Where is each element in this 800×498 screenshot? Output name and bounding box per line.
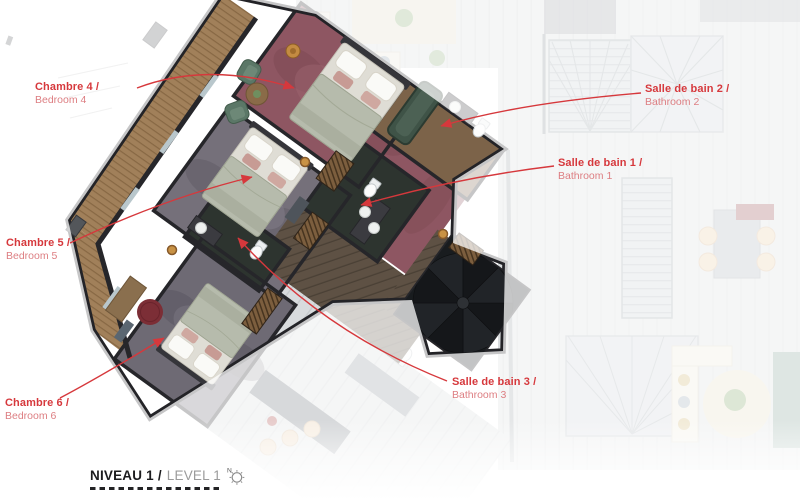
level-title-primary: NIVEAU 1 / (90, 468, 162, 483)
room-label-secondary: Bathroom 1 (558, 170, 642, 183)
room-label-primary: Salle de bain 3 / (452, 376, 536, 389)
north-indicator-icon: N (226, 466, 245, 485)
room-label-chambre-4: Chambre 4 / Bedroom 4 (35, 81, 99, 106)
floor-plan-rendering (0, 0, 800, 498)
room-label-salle-de-bain-2: Salle de bain 2 / Bathroom 2 (645, 83, 729, 108)
room-label-primary: Chambre 4 / (35, 81, 99, 94)
room-label-chambre-5: Chambre 5 / Bedroom 5 (6, 237, 70, 262)
room-label-primary: Salle de bain 2 / (645, 83, 729, 96)
svg-text:N: N (227, 468, 232, 475)
room-label-primary: Chambre 5 / (6, 237, 70, 250)
room-label-secondary: Bathroom 3 (452, 389, 536, 402)
room-label-primary: Chambre 6 / (5, 397, 69, 410)
floor-plan-page: Chambre 4 / Bedroom 4 Chambre 5 / Bedroo… (0, 0, 800, 498)
level-title-secondary: LEVEL 1 (167, 468, 221, 483)
room-label-secondary: Bathroom 2 (645, 96, 729, 109)
room-label-secondary: Bedroom 6 (5, 410, 69, 423)
room-label-secondary: Bedroom 4 (35, 94, 99, 107)
level-title: NIVEAU 1 / LEVEL 1 N (90, 466, 245, 485)
room-label-primary: Salle de bain 1 / (558, 157, 642, 170)
room-label-salle-de-bain-1: Salle de bain 1 / Bathroom 1 (558, 157, 642, 182)
room-label-salle-de-bain-3: Salle de bain 3 / Bathroom 3 (452, 376, 536, 401)
room-label-chambre-6: Chambre 6 / Bedroom 6 (5, 397, 69, 422)
room-label-secondary: Bedroom 5 (6, 250, 70, 263)
level-title-dashed-underline (90, 487, 219, 490)
